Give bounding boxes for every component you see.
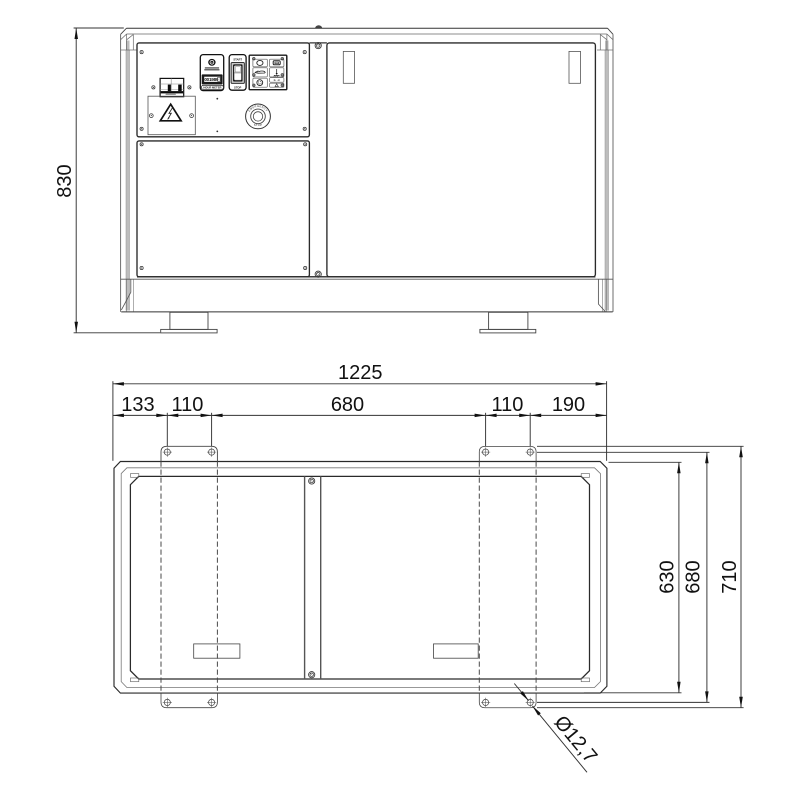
svg-text:001989: 001989 [204,77,219,82]
svg-text:830: 830 [54,164,76,197]
svg-text:710: 710 [719,560,741,593]
svg-text:HOUR METER: HOUR METER [203,85,221,89]
svg-text:110: 110 [172,394,204,416]
svg-text:680: 680 [683,560,705,593]
svg-text:190: 190 [552,394,585,416]
svg-text:630: 630 [657,560,679,593]
svg-text:110: 110 [492,394,524,416]
svg-text:STOP: STOP [254,123,262,127]
svg-text:680: 680 [331,394,364,416]
svg-text:1225: 1225 [338,362,383,384]
svg-text:STOP: STOP [234,85,241,89]
svg-text:START: START [233,57,242,61]
svg-text:133: 133 [121,394,154,416]
